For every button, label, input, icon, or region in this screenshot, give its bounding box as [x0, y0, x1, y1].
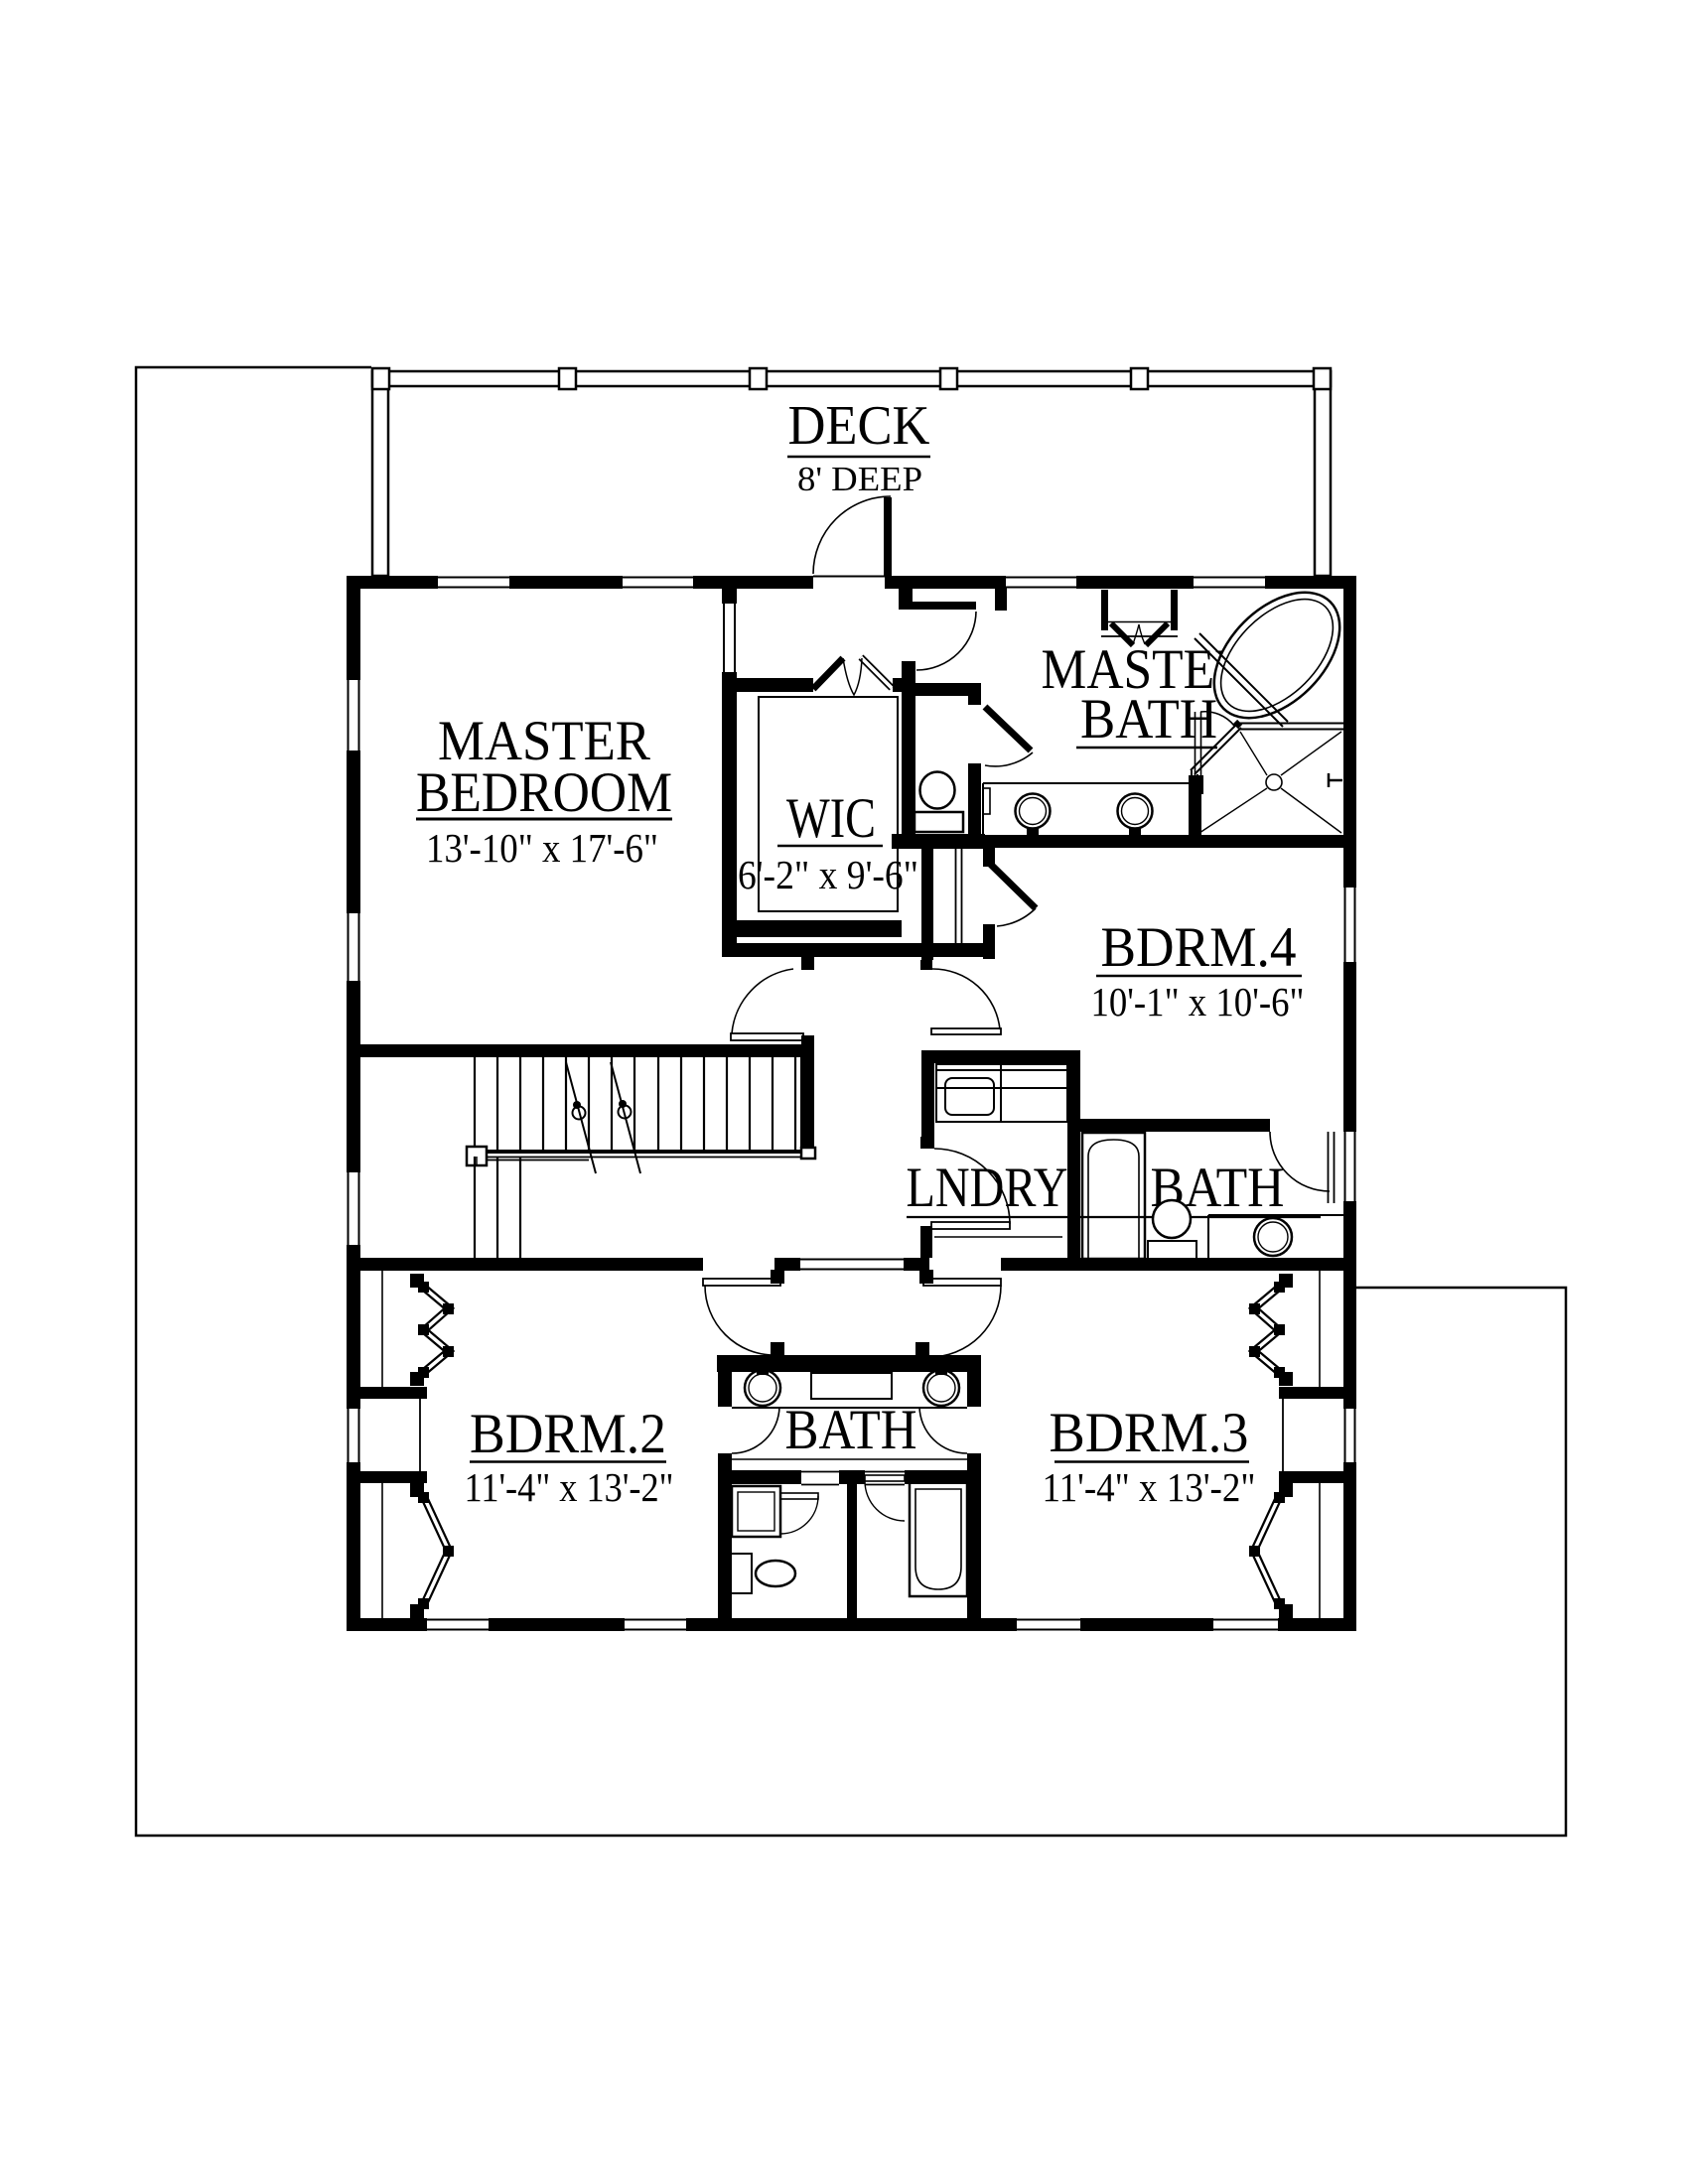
- svg-text:LNDRY: LNDRY: [907, 1157, 1068, 1219]
- svg-text:11'-4" x 13'-2": 11'-4" x 13'-2": [1043, 1464, 1256, 1510]
- svg-text:10'-1" x 10'-6": 10'-1" x 10'-6": [1091, 979, 1305, 1024]
- svg-text:WIC: WIC: [786, 787, 876, 850]
- svg-text:BDRM.4: BDRM.4: [1101, 916, 1297, 979]
- svg-text:BATH: BATH: [785, 1399, 917, 1461]
- svg-text:BATH: BATH: [1080, 688, 1217, 751]
- svg-text:BDRM.3: BDRM.3: [1050, 1402, 1249, 1464]
- svg-text:BEDROOM: BEDROOM: [416, 761, 672, 824]
- svg-text:8' DEEP: 8' DEEP: [797, 460, 922, 498]
- svg-text:6'-2" x 9'-6": 6'-2" x 9'-6": [738, 852, 918, 897]
- svg-text:13'-10" x 17'-6": 13'-10" x 17'-6": [426, 825, 658, 871]
- svg-text:11'-4" x 13'-2": 11'-4" x 13'-2": [465, 1464, 674, 1510]
- svg-text:DECK: DECK: [788, 395, 930, 457]
- svg-text:BDRM.2: BDRM.2: [470, 1403, 666, 1465]
